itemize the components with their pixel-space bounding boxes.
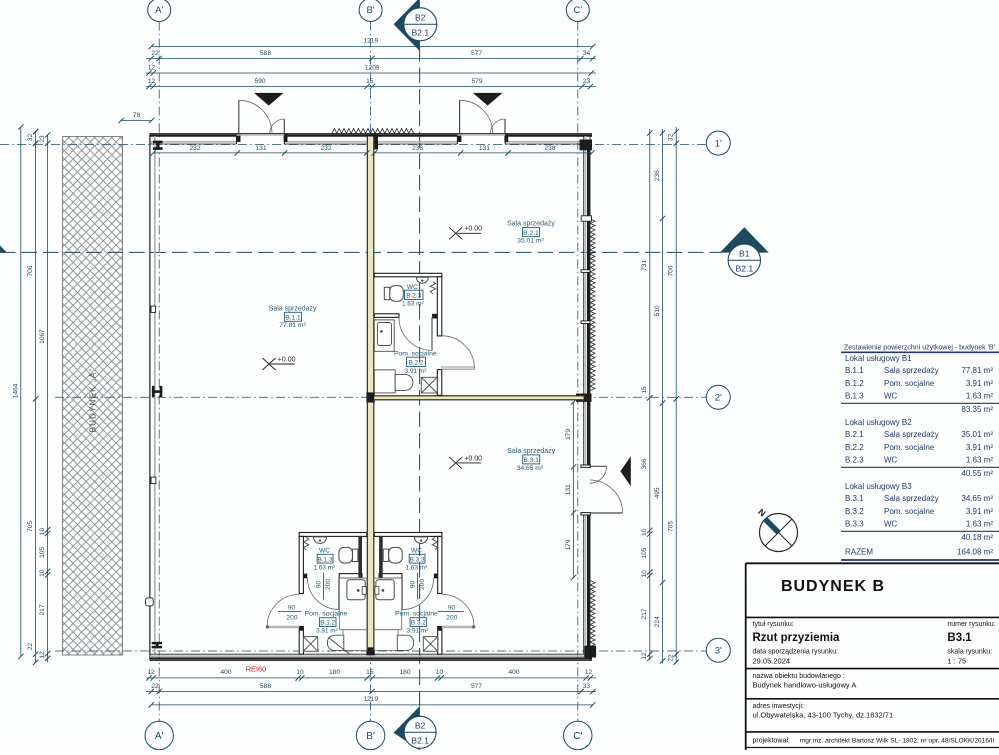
svg-text:adres inwestycji:: adres inwestycji:	[753, 703, 804, 710]
svg-text:590: 590	[254, 78, 265, 85]
svg-text:23: 23	[583, 78, 591, 85]
svg-text:1.63 m²: 1.63 m²	[966, 520, 993, 529]
svg-text:B3.1: B3.1	[947, 632, 972, 644]
svg-text:10: 10	[39, 569, 46, 577]
svg-text:B.1.3: B.1.3	[845, 392, 864, 401]
svg-text:3': 3'	[715, 646, 722, 657]
svg-text:366: 366	[641, 458, 648, 469]
svg-text:data sporządzenia rysunku:: data sporządzenia rysunku:	[753, 649, 839, 656]
svg-text:12: 12	[585, 669, 593, 676]
svg-text:BUDYNEK B: BUDYNEK B	[781, 578, 885, 595]
svg-text:Sala sprzedaży: Sala sprzedaży	[269, 306, 317, 313]
svg-text:400: 400	[220, 669, 231, 676]
svg-text:10: 10	[436, 669, 444, 676]
svg-text:REI60: REI60	[246, 665, 267, 674]
svg-text:1.63 m²: 1.63 m²	[405, 565, 427, 572]
svg-text:90: 90	[448, 605, 456, 612]
svg-text:mgr inż. architekt Bartosz Wil: mgr inż. architekt Bartosz Wilk SL- 1802…	[800, 737, 995, 744]
svg-text:B.2.2: B.2.2	[409, 360, 424, 367]
svg-text:579: 579	[471, 78, 482, 85]
svg-text:232: 232	[320, 145, 331, 152]
svg-text:510: 510	[654, 305, 661, 316]
svg-text:3.91 m²: 3.91 m²	[966, 507, 993, 516]
svg-text:3.91 m²: 3.91 m²	[405, 368, 427, 375]
svg-text:B.1.1: B.1.1	[845, 366, 864, 375]
svg-text:588: 588	[260, 50, 271, 57]
svg-text:B.3.1: B.3.1	[523, 457, 539, 464]
svg-text:B': B'	[366, 731, 375, 742]
svg-text:180: 180	[399, 669, 410, 676]
svg-text:705: 705	[668, 521, 675, 532]
svg-text:3.91 m²: 3.91 m²	[966, 379, 993, 388]
svg-text:B2: B2	[415, 13, 426, 23]
svg-text:224: 224	[654, 616, 661, 627]
svg-text:Sala sprzedaży: Sala sprzedaży	[884, 366, 939, 375]
svg-text:34.65 m²: 34.65 m²	[517, 465, 544, 472]
svg-text:90: 90	[409, 581, 416, 589]
svg-text:Pom. socjalne: Pom. socjalne	[394, 350, 437, 357]
svg-text:179: 179	[565, 429, 572, 440]
svg-text:78: 78	[133, 112, 141, 119]
svg-text:105: 105	[39, 547, 46, 558]
svg-text:10: 10	[39, 528, 46, 536]
svg-text:236: 236	[654, 170, 661, 181]
svg-text:B': B'	[367, 5, 375, 16]
svg-text:WC: WC	[319, 548, 330, 555]
svg-text:Lokal usługowy B1: Lokal usługowy B1	[845, 354, 912, 363]
svg-text:B.2.1: B.2.1	[845, 430, 864, 439]
svg-text:+0.00: +0.00	[464, 226, 482, 233]
svg-text:588: 588	[260, 683, 271, 690]
svg-text:179: 179	[565, 539, 572, 550]
svg-text:1464: 1464	[13, 383, 20, 398]
svg-text:3.91 m²: 3.91 m²	[316, 628, 338, 635]
svg-text:105: 105	[641, 547, 648, 558]
svg-text:200: 200	[286, 615, 297, 622]
svg-text:B.1.2: B.1.2	[845, 379, 864, 388]
svg-text:10: 10	[641, 528, 648, 536]
svg-text:+0.00: +0.00	[278, 356, 296, 363]
svg-text:22: 22	[151, 683, 159, 690]
svg-text:131: 131	[565, 484, 572, 495]
svg-text:577: 577	[471, 50, 482, 57]
svg-text:164.08 m²: 164.08 m²	[957, 548, 993, 557]
svg-text:Sala sprzedaży: Sala sprzedaży	[507, 448, 555, 455]
svg-text:1219: 1219	[363, 696, 378, 703]
svg-text:15: 15	[641, 386, 648, 394]
svg-text:B1: B1	[739, 249, 750, 259]
svg-text:238: 238	[412, 145, 423, 152]
svg-text:Sala sprzedaży: Sala sprzedaży	[884, 430, 939, 439]
svg-text:B.3.3: B.3.3	[410, 556, 425, 563]
svg-text:B2.1: B2.1	[735, 263, 753, 273]
svg-text:Sala sprzedaży: Sala sprzedaży	[884, 494, 939, 503]
svg-text:skala rysunku:: skala rysunku:	[947, 649, 992, 656]
svg-text:77.81 m²: 77.81 m²	[279, 322, 306, 329]
svg-text:1.63 m²: 1.63 m²	[966, 456, 993, 465]
svg-text:B.3.2: B.3.2	[845, 507, 864, 516]
svg-text:15: 15	[366, 78, 374, 85]
svg-text:projektował:: projektował:	[753, 737, 790, 744]
svg-text:232: 232	[189, 145, 200, 152]
svg-text:705: 705	[27, 521, 34, 532]
svg-text:B.3.2: B.3.2	[411, 620, 426, 627]
svg-text:1219: 1219	[363, 38, 378, 45]
svg-text:1.63 m²: 1.63 m²	[313, 565, 335, 572]
svg-text:35.01 m²: 35.01 m²	[961, 430, 993, 439]
svg-text:Budynek handlowo-usługowy A: Budynek handlowo-usługowy A	[753, 680, 857, 689]
svg-text:Lokal usługowy B3: Lokal usługowy B3	[845, 482, 912, 491]
svg-text:238: 238	[544, 145, 555, 152]
svg-text:90: 90	[288, 605, 296, 612]
svg-text:C': C'	[573, 731, 582, 742]
svg-text:10: 10	[296, 669, 304, 676]
svg-text:33: 33	[583, 683, 591, 690]
svg-text:1.63 m²: 1.63 m²	[966, 392, 993, 401]
svg-text:nazwa obiektu budowlanego :: nazwa obiektu budowlanego :	[753, 673, 845, 680]
svg-text:400: 400	[508, 669, 519, 676]
svg-text:Zestawienie powierzchni użytko: Zestawienie powierzchni użytkowej - budy…	[844, 345, 995, 352]
svg-text:15: 15	[366, 669, 374, 676]
svg-text:Sala sprzedaży: Sala sprzedaży	[507, 221, 555, 228]
svg-text:32: 32	[668, 133, 675, 141]
svg-text:40.18 m²: 40.18 m²	[961, 533, 993, 542]
svg-text:B.1.2: B.1.2	[320, 620, 335, 627]
svg-text:3.91 m²: 3.91 m²	[966, 443, 993, 452]
svg-text:B2.1: B2.1	[411, 735, 429, 745]
svg-text:WC: WC	[411, 548, 422, 555]
svg-text:1': 1'	[715, 138, 722, 149]
svg-text:WC: WC	[884, 520, 898, 529]
svg-text:200: 200	[325, 579, 332, 590]
svg-text:217: 217	[641, 608, 648, 619]
svg-text:83.35 m²: 83.35 m²	[961, 405, 993, 414]
svg-text:B.2.3: B.2.3	[845, 456, 864, 465]
svg-text:35.01 m²: 35.01 m²	[517, 238, 544, 245]
svg-text:C': C'	[573, 5, 582, 16]
svg-text:12: 12	[641, 652, 648, 660]
svg-text:B.1.3: B.1.3	[318, 556, 333, 563]
svg-text:90: 90	[315, 581, 322, 589]
svg-text:+0.00: +0.00	[464, 455, 482, 462]
svg-text:77.81 m²: 77.81 m²	[961, 366, 993, 375]
svg-text:WC: WC	[884, 456, 898, 465]
svg-text:706: 706	[27, 265, 34, 276]
svg-text:22: 22	[151, 50, 159, 57]
svg-text:706: 706	[668, 265, 675, 276]
svg-text:12: 12	[39, 651, 46, 659]
svg-text:B.3.1: B.3.1	[845, 494, 864, 503]
svg-text:Pom. socjalne: Pom. socjalne	[305, 611, 348, 618]
svg-text:3.91 m²: 3.91 m²	[407, 628, 429, 635]
svg-text:217: 217	[39, 604, 46, 615]
svg-text:22: 22	[668, 654, 675, 662]
svg-text:131: 131	[255, 145, 266, 152]
svg-text:Pom. socjalne: Pom. socjalne	[884, 379, 935, 388]
svg-text:Pom. socjalne: Pom. socjalne	[884, 443, 935, 452]
svg-text:34.65 m²: 34.65 m²	[961, 494, 993, 503]
svg-text:1209: 1209	[365, 64, 380, 71]
svg-text:A': A'	[155, 5, 163, 16]
svg-text:Pom. socjalne: Pom. socjalne	[884, 507, 935, 516]
svg-text:WC: WC	[884, 392, 898, 401]
svg-text:23: 23	[39, 135, 46, 143]
svg-text:731: 731	[641, 260, 648, 271]
svg-text:200: 200	[419, 579, 426, 590]
svg-text:12: 12	[148, 64, 156, 71]
svg-text:tytuł rysunku:: tytuł rysunku:	[753, 621, 794, 628]
svg-text:B.2.1: B.2.1	[523, 230, 539, 237]
svg-text:32: 32	[27, 133, 34, 141]
svg-text:B.3.3: B.3.3	[845, 520, 864, 529]
svg-text:12: 12	[148, 78, 156, 85]
svg-text:29.05.2024: 29.05.2024	[753, 657, 791, 666]
svg-text:1.63 m²: 1.63 m²	[402, 301, 424, 308]
svg-text:B.1.1: B.1.1	[285, 315, 301, 322]
svg-text:2': 2'	[715, 393, 722, 404]
svg-text:495: 495	[654, 487, 661, 498]
svg-text:ul.Obywatelska, 43-100 Tychy,: ul.Obywatelska, 43-100 Tychy, dz.1832/71	[753, 710, 894, 719]
svg-text:22: 22	[27, 643, 34, 651]
svg-text:Lokal usługowy B2: Lokal usługowy B2	[845, 418, 912, 427]
svg-text:34: 34	[583, 50, 591, 57]
svg-text:40.55 m²: 40.55 m²	[961, 469, 993, 478]
svg-text:10: 10	[641, 570, 648, 578]
svg-text:RAZEM: RAZEM	[845, 548, 873, 557]
svg-text:B.2.3: B.2.3	[406, 293, 421, 300]
svg-text:Pom. socjalne: Pom. socjalne	[395, 611, 438, 618]
svg-text:12: 12	[147, 669, 155, 676]
svg-text:BUDYNEK „A”: BUDYNEK „A”	[89, 368, 98, 433]
svg-text:B.2.2: B.2.2	[845, 443, 864, 452]
svg-text:577: 577	[471, 683, 482, 690]
svg-text:1 : 75: 1 : 75	[947, 657, 966, 666]
svg-text:A': A'	[155, 731, 164, 742]
svg-text:numer rysunku:: numer rysunku:	[947, 621, 995, 628]
svg-text:B2.1: B2.1	[411, 27, 429, 37]
svg-text:1067: 1067	[39, 329, 46, 344]
svg-text:200: 200	[446, 615, 457, 622]
svg-text:B2: B2	[415, 721, 426, 731]
svg-text:180: 180	[329, 669, 340, 676]
svg-text:Rzut przyziemia: Rzut przyziemia	[753, 632, 841, 644]
svg-text:131: 131	[479, 145, 490, 152]
